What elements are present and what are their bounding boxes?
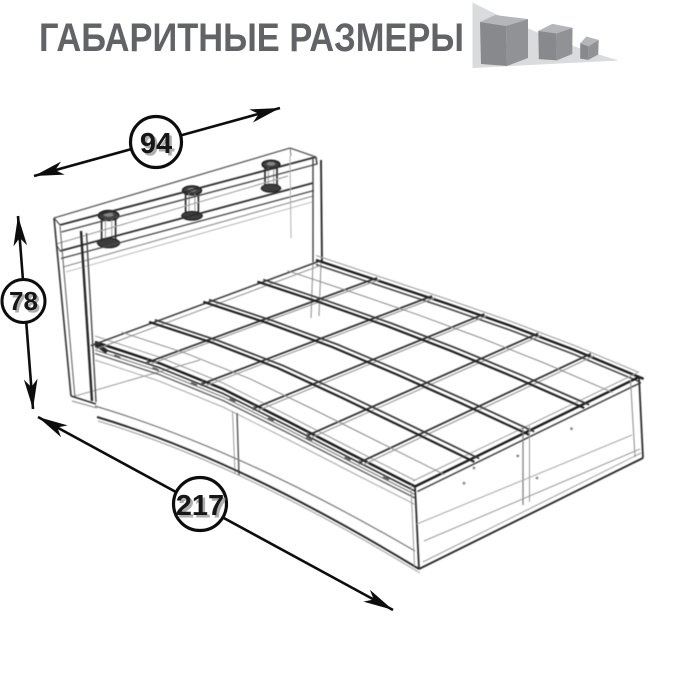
svg-text:94: 94 — [140, 128, 172, 160]
svg-text:78: 78 — [9, 286, 38, 316]
svg-text:ГАБАРИТНЫЕ РАЗМЕРЫ: ГАБАРИТНЫЕ РАЗМЕРЫ — [39, 16, 464, 60]
svg-text:217: 217 — [176, 490, 224, 522]
